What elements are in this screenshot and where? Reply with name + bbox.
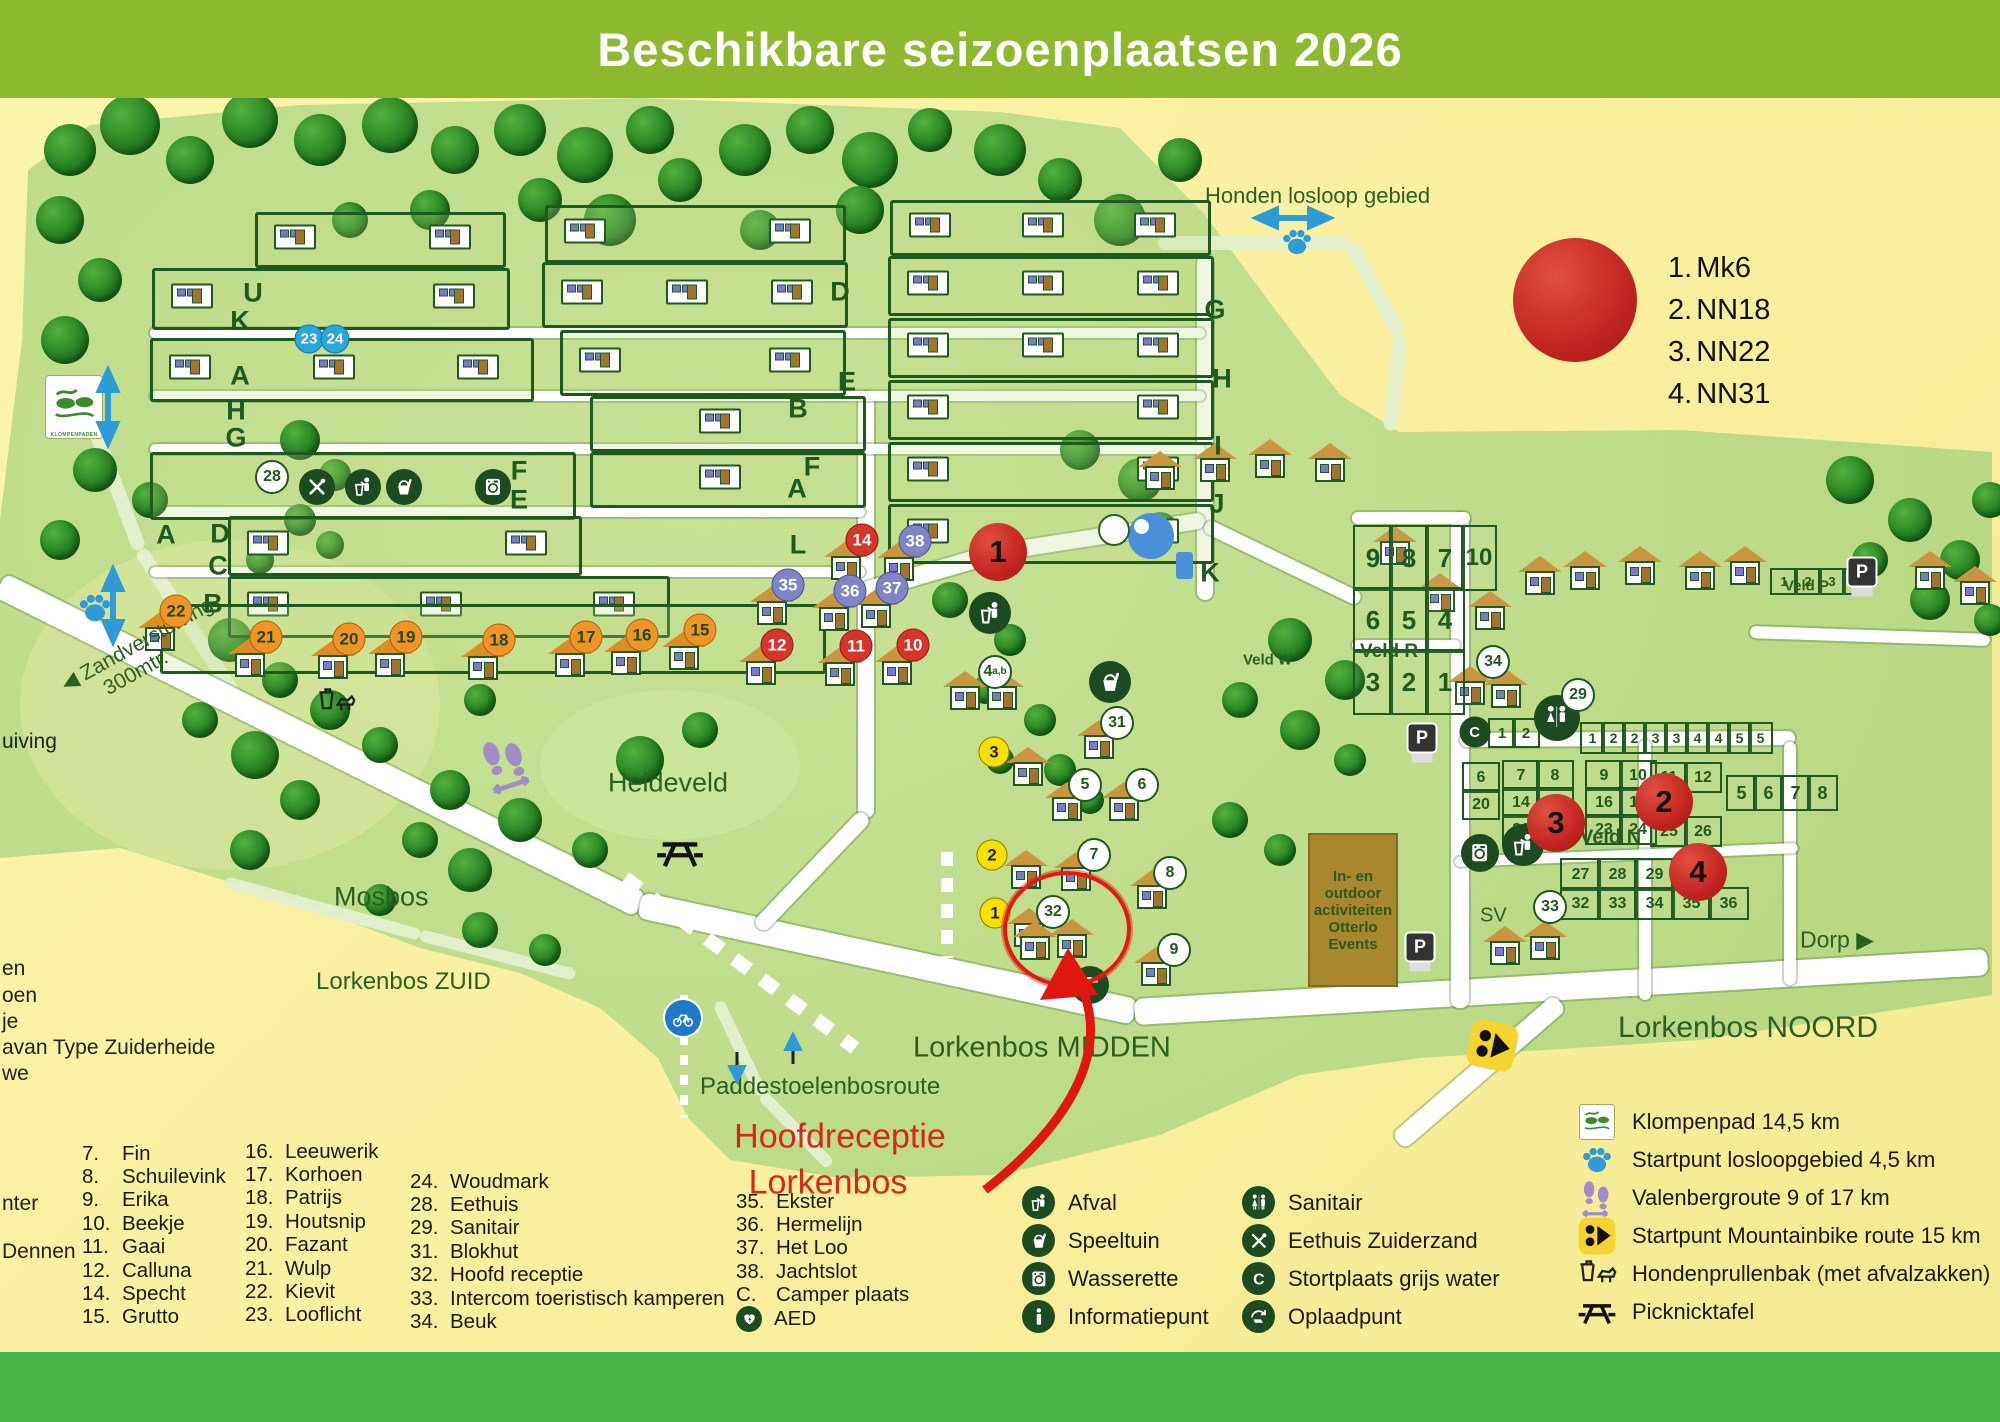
tree (1212, 802, 1248, 838)
wasserette-icon (475, 469, 511, 505)
legend-name: Leeuwerik (285, 1140, 378, 1164)
tree (1334, 744, 1366, 776)
tree (682, 712, 718, 748)
legend-name: Specht (122, 1282, 186, 1306)
row-letter: C (208, 551, 228, 582)
legend-name: Kievit (285, 1280, 335, 1304)
map-canvas: 9876543211012122334455620781415219101617… (0, 0, 2000, 1422)
facility-label: Wasserette (1068, 1266, 1178, 1292)
legend-name-row: 14.Specht (82, 1282, 226, 1305)
mobile-home (699, 409, 741, 434)
facility-legend-row: Sanitair (1242, 1186, 1500, 1219)
wasserette-icon (1022, 1262, 1055, 1295)
sanitair-icon (1242, 1186, 1275, 1219)
legend-num: 21. (245, 1257, 285, 1281)
pitch-marker-21: 21 (250, 621, 283, 654)
pitch-marker-19: 19 (390, 621, 423, 654)
pitch-legend-col4: 35.Ekster36.Hermelijn37.Het Loo38.Jachts… (736, 1190, 909, 1330)
legend-name: Beekje (122, 1212, 185, 1236)
route-label: Hondenprullenbak (met afvalzakken) (1632, 1261, 1990, 1287)
parking-sign: P (1405, 932, 1436, 963)
mtb-icon (1460, 1014, 1524, 1078)
tree (431, 126, 479, 174)
route-legend-row: Valenbergroute 9 of 17 km (1576, 1182, 1990, 1215)
pitch-marker-5: 5 (1068, 768, 1102, 802)
legend-name: Sanitair (450, 1216, 520, 1240)
legend-name: Gaai (122, 1235, 165, 1259)
legend-num: C. (736, 1283, 776, 1307)
facility-label: Eethuis Zuiderzand (1288, 1228, 1478, 1254)
veld-r-cell: 4 (1425, 587, 1465, 653)
bottom-bar (0, 1352, 2000, 1422)
bike-route-icon (663, 998, 703, 1038)
legend-num: 23. (245, 1303, 285, 1327)
legend-name: Grutto (122, 1305, 179, 1329)
pitch-marker-38: 38 (899, 525, 932, 558)
map-label-sv: SV (1480, 905, 1507, 928)
pitch-marker-23: 23 (295, 325, 324, 354)
oplaad-icon (1242, 1300, 1275, 1333)
map-label-zuid: Lorkenbos ZUID (316, 968, 491, 996)
legend-num: 24. (410, 1170, 450, 1194)
legend-name: Houtsnip (285, 1210, 366, 1234)
route-legend-row: Hondenprullenbak (met afvalzakken) (1576, 1258, 1990, 1291)
tree (73, 448, 117, 492)
pitch-marker-15: 15 (684, 614, 717, 647)
legend-num: 19. (245, 1210, 285, 1234)
legend-num: 18. (245, 1186, 285, 1210)
hut-tan (1908, 551, 1952, 589)
pitch-legend-col3: 24.Woudmark28.Eethuis29.Sanitair31.Blokh… (410, 1170, 725, 1334)
mobile-home (907, 457, 949, 482)
pitch-marker-3: 3 (1527, 794, 1585, 852)
route-label: Klompenpad 14,5 km (1632, 1109, 1840, 1135)
tree (280, 780, 320, 820)
facility-legend-row: Oplaadpunt (1242, 1300, 1500, 1333)
pitch-marker-6: 6 (1125, 768, 1159, 802)
tree (908, 108, 952, 152)
legend-num: 22. (245, 1280, 285, 1304)
legend-name: Schuilevink (122, 1165, 226, 1189)
legend-name-row: 19.Houtsnip (245, 1210, 378, 1233)
pitch-marker-16: 16 (626, 619, 659, 652)
legend-name-row: 24.Woudmark (410, 1170, 725, 1193)
pitch-marker-4: 4 (1669, 843, 1727, 901)
tree (294, 114, 346, 166)
map-label-heideveld: Heideveld (608, 768, 728, 799)
mobile-home (1137, 395, 1179, 420)
events-box: In- en outdoor activiteiten Otterlo Even… (1308, 833, 1398, 987)
row-letter: H (1212, 364, 1232, 395)
legend-name: Erika (122, 1188, 169, 1212)
route-label: Startpunt losloopgebied 4,5 km (1632, 1147, 1935, 1173)
dashed-path (941, 852, 953, 958)
tree (1972, 482, 2000, 518)
mobile-home (505, 531, 547, 556)
facility-legend-a: AfvalSpeeltuinWasseretteInformatiepunt (1022, 1186, 1209, 1333)
mobile-home (1022, 271, 1064, 296)
legend-num: 8. (82, 1165, 122, 1189)
edge-text: nter (2, 1192, 38, 1216)
tree (402, 822, 438, 858)
legend-num: 29. (410, 1216, 450, 1240)
row-letter: U (243, 278, 263, 309)
row-letter: A (156, 520, 176, 551)
legend-num: 17. (245, 1163, 285, 1187)
row-letter: G (225, 423, 246, 454)
availability-label: NN22 (1696, 336, 1770, 369)
legend-name-row: 29.Sanitair (410, 1217, 725, 1240)
tree (430, 770, 470, 810)
legend-name: Looflicht (285, 1303, 361, 1327)
mobile-home (429, 225, 471, 250)
klompenpad-sign: KLOMPENPADEN (45, 375, 103, 439)
hut-tan (1483, 926, 1527, 964)
legend-name-row: AED (736, 1307, 909, 1330)
pitch-marker-10: 10 (897, 629, 930, 662)
legend-name: Hoofd receptie (450, 1263, 583, 1287)
pitch-marker-2: 2 (977, 840, 1008, 871)
hut-tan (1723, 546, 1767, 584)
legend-name-row: 28.Eethuis (410, 1193, 725, 1216)
facility-legend-row: Afval (1022, 1186, 1209, 1219)
hut-tan (1678, 551, 1722, 589)
legend-name: Korhoen (285, 1163, 363, 1187)
availability-item: 3.NN22 (1668, 336, 1770, 369)
row-letter: A (787, 474, 807, 505)
legend-num: 34. (410, 1310, 450, 1334)
facility-legend-row: Informatiepunt (1022, 1300, 1209, 1333)
edge-text: en (2, 957, 25, 981)
legend-num: 7. (82, 1142, 122, 1166)
mobile-home (564, 219, 606, 244)
paw-icon (72, 585, 118, 631)
legend-name-row: 32.Hoofd receptie (410, 1264, 725, 1287)
footprints-icon (1576, 1180, 1618, 1216)
tree (786, 106, 834, 154)
hut-tan (1006, 747, 1050, 785)
tree (719, 124, 771, 176)
mobile-home (666, 280, 708, 305)
mobile-home (171, 284, 213, 309)
row-letter: A (230, 361, 250, 392)
pitch-marker-11: 11 (840, 630, 873, 663)
veld-r-cell: 10 (1461, 525, 1497, 591)
edge-text: uiving (2, 730, 57, 754)
tree (36, 196, 84, 244)
tree (100, 95, 160, 155)
tree (974, 124, 1026, 176)
veld-n-cell: 34 (1634, 887, 1675, 920)
legend-name: Calluna (122, 1259, 192, 1283)
availability-num: 2. (1668, 294, 1692, 327)
info-icon (1022, 1300, 1055, 1333)
legend-name-row: 18.Patrijs (245, 1187, 378, 1210)
speeltuin-icon (1022, 1224, 1055, 1257)
tree (448, 848, 492, 892)
hut-tan (1138, 451, 1182, 489)
map-label-paddestoelen: Paddestoelenbosroute (700, 1073, 940, 1101)
mobile-home (907, 271, 949, 296)
legend-name-row: 38.Jachtslot (736, 1260, 909, 1283)
mobile-home (247, 531, 289, 556)
pitch-marker-1: 1 (969, 523, 1027, 581)
legend-name-row: 17.Korhoen (245, 1163, 378, 1186)
mobile-home (561, 280, 603, 305)
legend-num: 33. (410, 1287, 450, 1311)
pitch-marker-12: 12 (761, 629, 794, 662)
legend-name-row: 8.Schuilevink (82, 1165, 226, 1188)
legend-name-row: 36.Hermelijn (736, 1213, 909, 1236)
legend-name-row: 33.Intercom toeristisch kamperen (410, 1287, 725, 1310)
availability-label: Mk6 (1696, 252, 1751, 285)
map-label-veld-p: Veld P (1784, 578, 1829, 595)
map-label-veld-r: Veld R (1360, 641, 1418, 663)
legend-name-row: 12.Calluna (82, 1259, 226, 1282)
walking-path (1383, 334, 1407, 430)
pitch-marker-34: 34 (1476, 645, 1510, 679)
row-letter: F (511, 456, 528, 487)
availability-num: 3. (1668, 336, 1692, 369)
picnic-icon (1576, 1294, 1618, 1330)
map-label-noord: Lorkenbos NOORD (1618, 1011, 1878, 1045)
veld-n-cell: 26 (1684, 816, 1722, 847)
legend-name: Jachtslot (776, 1260, 857, 1284)
pitch-marker-4: 4a,b (978, 655, 1012, 689)
route-legend-row: Startpunt losloopgebied 4,5 km (1576, 1144, 1990, 1177)
facility-label: Stortplaats grijs water (1288, 1266, 1500, 1292)
tree (230, 830, 270, 870)
row-letter: E (838, 367, 856, 398)
hut-tan (1563, 551, 1607, 589)
availability-item: 1.Mk6 (1668, 252, 1770, 285)
row-letter: K (230, 306, 250, 337)
mobile-home (433, 284, 475, 309)
wasserette-icon (1461, 834, 1499, 872)
eethuis-icon (299, 469, 335, 505)
pitch-marker-9: 9 (1157, 933, 1191, 967)
route-legend: Klompenpad 14,5 kmStartpunt losloopgebie… (1576, 1106, 1990, 1329)
hut-tan (1618, 546, 1662, 584)
legend-name-row: 15.Grutto (82, 1306, 226, 1329)
edge-text: oen (2, 984, 37, 1008)
edge-text: we (2, 1062, 29, 1086)
row-letter: L (790, 530, 807, 561)
legend-name-row: C.Camper plaats (736, 1284, 909, 1307)
row-letter: E (510, 485, 528, 516)
reception-annotation-line2: Lorkenbos (749, 1164, 908, 1203)
tree (1826, 456, 1874, 504)
facility-label: Oplaadpunt (1288, 1304, 1402, 1330)
legend-name-row: 37.Het Loo (736, 1237, 909, 1260)
legend-name: Wulp (285, 1257, 331, 1281)
legend-num: 9. (82, 1188, 122, 1212)
route-legend-row: Picknicktafel (1576, 1296, 1990, 1329)
pitch-marker-8: 8 (1153, 856, 1187, 890)
pitch-marker-36: 36 (834, 575, 867, 608)
mobile-home (1137, 333, 1179, 358)
hut-tan (1953, 566, 1997, 604)
availability-num: 4. (1668, 378, 1692, 411)
tree (842, 132, 898, 188)
svg-text:C: C (1470, 725, 1481, 741)
legend-name-row: 34.Beuk (410, 1310, 725, 1333)
row-letter: D (830, 277, 850, 308)
veld-r-cell: 9 (1353, 525, 1393, 591)
mobile-home (169, 355, 211, 380)
tree (557, 127, 613, 183)
tree (1158, 138, 1202, 182)
hut-tan (1518, 556, 1562, 594)
veld-r-cell: 1 (1425, 649, 1465, 715)
tree (1038, 158, 1082, 202)
mobile-home (699, 465, 741, 490)
mobile-home (909, 213, 951, 238)
legend-name-row: 20.Fazant (245, 1234, 378, 1257)
legend-name-row: 10.Beekje (82, 1212, 226, 1235)
mobile-home (313, 355, 355, 380)
legend-num: 28. (410, 1193, 450, 1217)
legend-num: 15. (82, 1305, 122, 1329)
pitch-marker-18: 18 (483, 624, 516, 657)
legend-name: AED (774, 1307, 816, 1331)
hut-tan (1308, 443, 1352, 481)
legend-num: 37. (736, 1236, 776, 1260)
pitch-marker-2: 2 (1635, 773, 1693, 831)
legend-num: 36. (736, 1213, 776, 1237)
legend-name: Patrijs (285, 1186, 342, 1210)
tree (494, 104, 546, 156)
legend-name: Het Loo (776, 1236, 848, 1260)
legend-name: Eethuis (450, 1193, 518, 1217)
mobile-home (1022, 213, 1064, 238)
tree (462, 912, 498, 948)
route-label: Valenbergroute 9 of 17 km (1632, 1185, 1890, 1211)
parking-sign: P (1407, 723, 1438, 754)
tree (1280, 710, 1320, 750)
tree (658, 158, 702, 202)
klompenpad-sign-text: KLOMPENPADEN (51, 432, 98, 438)
walking-path (1344, 240, 1406, 339)
hut-tan (1468, 591, 1512, 629)
campground-map-screenshot: 9876543211012122334455620781415219101617… (0, 0, 2000, 1422)
tree (44, 124, 96, 176)
veld-w-cell: 8 (1807, 775, 1838, 811)
legend-name-row: 9.Erika (82, 1189, 226, 1212)
paw-icon (1576, 1142, 1618, 1178)
mtb-icon (1576, 1218, 1618, 1254)
tree (626, 106, 674, 154)
dogbin-icon (1576, 1256, 1618, 1292)
page-title: Beschikbare seizoenplaatsen 2026 (597, 22, 1402, 77)
facility-legend-row: Speeltuin (1022, 1224, 1209, 1257)
tree (222, 92, 278, 148)
legend-name: Camper plaats (776, 1283, 909, 1307)
legend-num: 16. (245, 1140, 285, 1164)
mobile-home (907, 395, 949, 420)
legend-name-row: 23.Looflicht (245, 1304, 378, 1327)
legend-name: Intercom toeristisch kamperen (450, 1287, 725, 1311)
pitch-marker-33: 33 (1533, 890, 1567, 924)
facility-legend-b: SanitairEethuis ZuiderzandCStortplaats g… (1242, 1186, 1500, 1333)
legend-name-row: 16.Leeuwerik (245, 1140, 378, 1163)
availability-list: 1.Mk62.NN183.NN224.NN31 (1668, 252, 1770, 411)
reception-highlight-ring (1003, 871, 1131, 987)
legend-name: Blokhut (450, 1240, 518, 1264)
row-letter: G (1204, 295, 1225, 326)
pitch-marker-22: 22 (160, 595, 193, 628)
dogbin-icon (315, 681, 357, 723)
hut-tan (1248, 439, 1292, 477)
legend-name: Woudmark (450, 1170, 549, 1194)
map-label-dorp: Dorp ▶ (1800, 927, 1874, 954)
mobile-home (907, 333, 949, 358)
row-letter: J (1209, 489, 1224, 520)
availability-item: 4.NN31 (1668, 378, 1770, 411)
facility-label: Sanitair (1288, 1190, 1363, 1216)
mobile-home (1134, 213, 1176, 238)
map-label-veld-n: Veld N (1580, 827, 1641, 850)
pitch-marker-35: 35 (772, 569, 805, 602)
legend-name-row: 11.Gaai (82, 1236, 226, 1259)
mobile-home (579, 348, 621, 373)
veld-r-cell: 7 (1425, 525, 1465, 591)
tree (1222, 682, 1258, 718)
availability-item: 2.NN18 (1668, 294, 1770, 327)
pitch-marker-17: 17 (570, 621, 603, 654)
pitch-marker-7: 7 (1077, 838, 1111, 872)
tree (231, 731, 279, 779)
availability-label: NN18 (1696, 294, 1770, 327)
pool-rect-icon (1176, 552, 1193, 579)
tree (1024, 704, 1056, 736)
speeltuin-icon (386, 469, 422, 505)
paw-icon (1276, 221, 1318, 263)
route-legend-row: Klompenpad 14,5 km (1576, 1106, 1990, 1139)
legend-num: 38. (736, 1260, 776, 1284)
legend-name-row: 31.Blokhut (410, 1240, 725, 1263)
legend-name-row: 21.Wulp (245, 1257, 378, 1280)
map-label-veld-w: Veld W (1243, 652, 1292, 669)
pitch-marker-3: 3 (979, 737, 1010, 768)
facility-legend-row: Wasserette (1022, 1262, 1209, 1295)
edge-text: je (2, 1010, 18, 1034)
facility-label: Informatiepunt (1068, 1304, 1209, 1330)
tree (362, 97, 418, 153)
tree (1888, 498, 1932, 542)
kettle-icon (1098, 514, 1130, 546)
legend-num: 32. (410, 1263, 450, 1287)
picnic-icon (654, 826, 706, 878)
pitch-marker-24: 24 (321, 325, 350, 354)
legend-num: 31. (410, 1240, 450, 1264)
hut-tan (1523, 921, 1567, 959)
tree (166, 136, 214, 184)
facility-legend-row: CStortplaats grijs water (1242, 1262, 1500, 1295)
facility-legend-row: Eethuis Zuiderzand (1242, 1224, 1500, 1257)
legend-name: Hermelijn (776, 1213, 863, 1237)
legend-name-row: 22.Kievit (245, 1280, 378, 1303)
row-letter: D (210, 519, 230, 550)
route-label: Picknicktafel (1632, 1299, 1754, 1325)
tree (1974, 604, 2000, 636)
tree (40, 520, 80, 560)
tree (932, 582, 968, 618)
legend-num: 14. (82, 1282, 122, 1306)
availability-circle (1513, 238, 1637, 362)
afval-icon (969, 592, 1011, 634)
edge-text: Dennen (2, 1240, 76, 1264)
